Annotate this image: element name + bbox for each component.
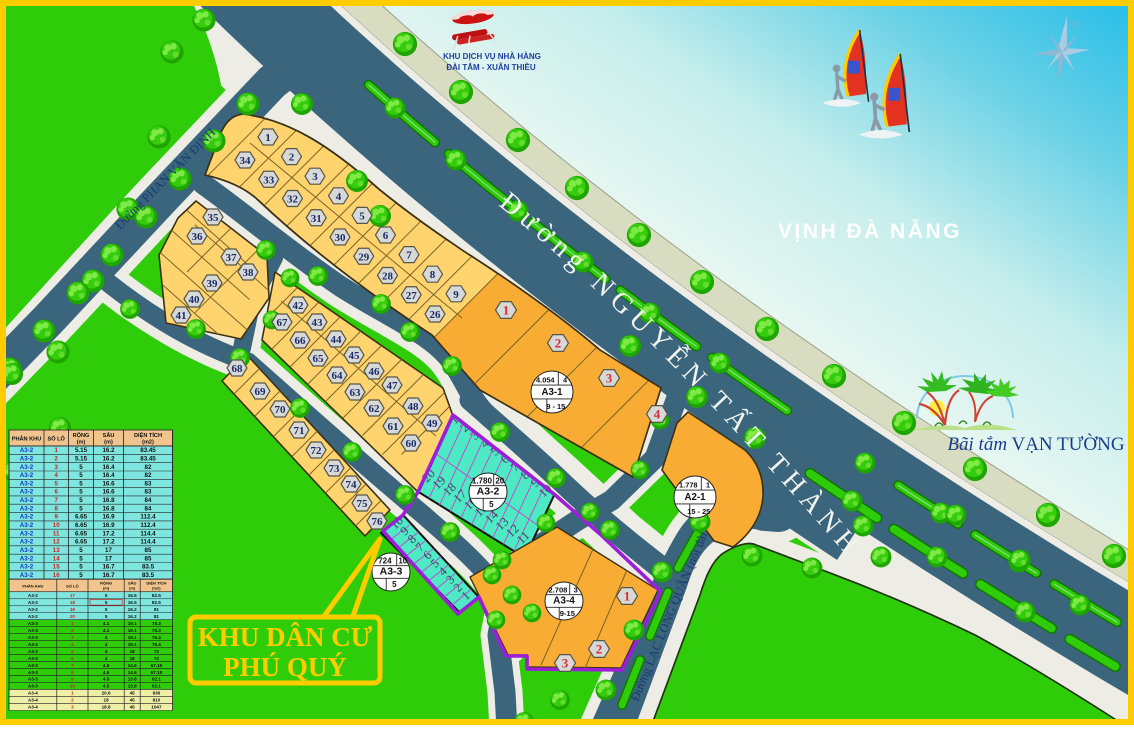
svg-text:34: 34 [240, 155, 252, 167]
svg-text:1047: 1047 [151, 705, 162, 710]
svg-text:39: 39 [207, 278, 219, 290]
svg-text:KHU DỊCH VỤ NHÀ HÀNG: KHU DỊCH VỤ NHÀ HÀNG [443, 52, 541, 61]
svg-text:15: 15 [53, 564, 60, 571]
svg-text:28: 28 [382, 271, 394, 283]
svg-text:VỊNH ĐÀ NẴNG: VỊNH ĐÀ NẴNG [778, 220, 962, 243]
svg-text:A3-3: A3-3 [28, 663, 38, 668]
svg-text:17: 17 [105, 555, 112, 562]
svg-text:48: 48 [408, 401, 420, 413]
svg-text:16.2: 16.2 [102, 447, 115, 454]
svg-text:A3-4: A3-4 [28, 691, 38, 696]
svg-text:19.1: 19.1 [128, 628, 137, 633]
svg-text:85: 85 [145, 555, 152, 562]
svg-text:70: 70 [275, 404, 287, 416]
svg-text:14.6: 14.6 [128, 663, 137, 668]
svg-text:17: 17 [105, 547, 112, 554]
svg-text:A3-2: A3-2 [20, 497, 34, 504]
svg-text:35: 35 [208, 212, 220, 224]
svg-text:7: 7 [54, 497, 58, 504]
svg-text:A3-2: A3-2 [477, 486, 500, 498]
svg-text:69: 69 [255, 386, 267, 398]
svg-text:16.8: 16.8 [102, 505, 115, 512]
svg-text:67.15: 67.15 [151, 670, 163, 675]
svg-text:A3-3: A3-3 [380, 566, 403, 578]
svg-text:62.1: 62.1 [152, 677, 161, 682]
svg-text:17.2: 17.2 [102, 539, 115, 546]
svg-text:17.2: 17.2 [102, 530, 115, 537]
svg-text:A3-3: A3-3 [28, 642, 38, 647]
svg-text:10: 10 [70, 684, 76, 689]
svg-text:A3-2: A3-2 [28, 593, 38, 598]
svg-text:5: 5 [359, 210, 365, 222]
svg-text:A3-2: A3-2 [20, 489, 34, 496]
svg-text:112.4: 112.4 [140, 522, 156, 529]
svg-text:13.8: 13.8 [128, 684, 137, 689]
svg-text:A3-4: A3-4 [28, 698, 38, 703]
svg-text:1: 1 [71, 621, 74, 626]
svg-text:62.1: 62.1 [152, 684, 161, 689]
svg-text:2: 2 [54, 455, 58, 462]
svg-text:A3-2: A3-2 [20, 472, 34, 479]
svg-text:64: 64 [332, 370, 344, 382]
svg-text:A3-2: A3-2 [20, 555, 34, 562]
svg-text:5: 5 [489, 500, 494, 509]
svg-text:A3-3: A3-3 [28, 649, 38, 654]
svg-text:61: 61 [388, 421, 399, 433]
svg-text:1.778: 1.778 [679, 481, 698, 490]
svg-text:5: 5 [79, 505, 83, 512]
svg-text:26: 26 [430, 309, 442, 321]
svg-text:33: 33 [263, 174, 275, 186]
svg-text:5.15: 5.15 [75, 455, 88, 462]
svg-text:81: 81 [154, 607, 160, 612]
svg-text:6.65: 6.65 [75, 522, 88, 529]
svg-text:82: 82 [145, 464, 152, 471]
svg-text:60: 60 [406, 438, 418, 450]
svg-text:114.4: 114.4 [140, 530, 156, 537]
svg-text:114.4: 114.4 [140, 539, 156, 546]
svg-text:4: 4 [54, 472, 58, 479]
svg-text:7: 7 [406, 250, 412, 262]
svg-text:A3-2: A3-2 [20, 464, 34, 471]
svg-text:6: 6 [71, 656, 74, 661]
svg-text:5: 5 [71, 649, 74, 654]
svg-text:16.9: 16.9 [102, 522, 115, 529]
svg-text:3: 3 [312, 171, 318, 183]
svg-text:4: 4 [71, 642, 74, 647]
svg-text:15 - 25: 15 - 25 [687, 507, 710, 516]
svg-text:76.4: 76.4 [152, 642, 161, 647]
svg-text:5.15: 5.15 [75, 447, 88, 454]
svg-text:4: 4 [105, 649, 108, 654]
svg-text:16.2: 16.2 [102, 455, 115, 462]
svg-text:44: 44 [331, 334, 343, 346]
svg-text:27: 27 [406, 290, 418, 302]
svg-text:(m): (m) [77, 440, 86, 446]
svg-text:66: 66 [295, 335, 307, 347]
svg-text:3: 3 [574, 586, 578, 595]
svg-text:1: 1 [503, 303, 510, 318]
svg-text:72: 72 [154, 649, 160, 654]
svg-text:RỘNG: RỘNG [73, 431, 90, 439]
svg-text:6.65: 6.65 [75, 539, 88, 546]
svg-text:1: 1 [71, 691, 74, 696]
svg-text:5: 5 [79, 564, 83, 571]
svg-text:5: 5 [79, 572, 83, 579]
svg-text:9: 9 [453, 289, 459, 301]
svg-text:A3-3: A3-3 [28, 684, 38, 689]
svg-text:2: 2 [596, 642, 603, 657]
svg-text:14: 14 [53, 555, 60, 562]
svg-text:A2-1: A2-1 [685, 492, 707, 503]
svg-text:(m): (m) [103, 586, 110, 591]
svg-text:(m2): (m2) [142, 440, 154, 446]
svg-text:18: 18 [104, 698, 110, 703]
svg-text:12: 12 [53, 539, 60, 546]
svg-text:19.1: 19.1 [128, 642, 137, 647]
svg-text:4.1: 4.1 [103, 628, 110, 633]
svg-text:11: 11 [53, 530, 60, 537]
svg-text:(m): (m) [104, 440, 113, 446]
svg-text:810: 810 [153, 698, 161, 703]
svg-text:8: 8 [71, 670, 74, 675]
svg-text:16.2: 16.2 [128, 614, 137, 619]
svg-text:3: 3 [54, 464, 58, 471]
svg-text:DIỆN TÍCH: DIỆN TÍCH [134, 431, 162, 439]
svg-text:6: 6 [383, 230, 389, 242]
svg-text:20: 20 [70, 614, 76, 619]
svg-text:A3-2: A3-2 [20, 480, 34, 487]
svg-text:4: 4 [336, 191, 342, 203]
svg-text:4.6: 4.6 [103, 663, 110, 668]
svg-text:45: 45 [349, 350, 361, 362]
svg-text:1: 1 [265, 132, 271, 144]
svg-text:A3-2: A3-2 [28, 607, 38, 612]
svg-text:19.1: 19.1 [128, 621, 137, 626]
svg-text:2: 2 [71, 698, 74, 703]
svg-text:4.5: 4.5 [103, 677, 110, 682]
svg-text:16.5: 16.5 [128, 600, 137, 605]
svg-text:5: 5 [79, 555, 83, 562]
svg-text:78.3: 78.3 [152, 628, 161, 633]
svg-text:936: 936 [153, 691, 161, 696]
svg-text:A3-3: A3-3 [28, 677, 38, 682]
svg-text:45: 45 [130, 705, 136, 710]
svg-text:47: 47 [387, 380, 399, 392]
svg-text:83.5: 83.5 [142, 572, 155, 579]
svg-text:5: 5 [105, 607, 108, 612]
svg-text:A3-2: A3-2 [20, 572, 34, 579]
svg-text:4: 4 [105, 656, 108, 661]
svg-text:KHU DÂN CƯ: KHU DÂN CƯ [198, 622, 373, 652]
svg-text:4.6: 4.6 [103, 670, 110, 675]
svg-text:A3-2: A3-2 [20, 522, 34, 529]
svg-text:A3-2: A3-2 [28, 600, 38, 605]
svg-text:45: 45 [130, 691, 136, 696]
svg-text:SÂU: SÂU [103, 432, 115, 439]
svg-text:(m): (m) [129, 586, 136, 591]
svg-text:81: 81 [154, 614, 160, 619]
svg-text:16.9: 16.9 [102, 514, 115, 521]
svg-text:4.1: 4.1 [103, 621, 110, 626]
svg-text:3: 3 [562, 656, 569, 671]
svg-text:45: 45 [130, 698, 136, 703]
svg-text:16: 16 [53, 572, 60, 579]
svg-text:4: 4 [105, 642, 108, 647]
svg-text:37: 37 [226, 252, 238, 264]
svg-text:32: 32 [287, 194, 299, 206]
svg-text:49: 49 [427, 418, 439, 430]
svg-text:5: 5 [79, 489, 83, 496]
svg-text:4.054: 4.054 [536, 376, 555, 385]
svg-text:14.6: 14.6 [128, 670, 137, 675]
svg-text:41: 41 [176, 310, 187, 322]
svg-text:84: 84 [145, 497, 152, 504]
svg-text:74: 74 [346, 479, 358, 491]
svg-text:A3-4: A3-4 [553, 596, 575, 607]
svg-text:67.15: 67.15 [151, 663, 163, 668]
svg-text:13: 13 [53, 547, 60, 554]
svg-text:68: 68 [232, 363, 244, 375]
svg-text:SỐ LÔ: SỐ LÔ [47, 435, 65, 443]
svg-text:A3-2: A3-2 [20, 447, 34, 454]
svg-text:A3-2: A3-2 [20, 539, 34, 546]
svg-text:16.8: 16.8 [102, 497, 115, 504]
svg-text:83.5: 83.5 [142, 564, 155, 571]
svg-text:3: 3 [71, 635, 74, 640]
svg-text:A3-2: A3-2 [20, 514, 34, 521]
svg-text:A3-3: A3-3 [28, 656, 38, 661]
svg-text:72: 72 [311, 445, 323, 457]
svg-text:A3-3: A3-3 [28, 670, 38, 675]
svg-text:4: 4 [654, 407, 661, 422]
svg-text:2: 2 [555, 336, 562, 351]
svg-text:16.5: 16.5 [128, 593, 137, 598]
svg-text:A3-2: A3-2 [20, 530, 34, 537]
svg-text:9-15: 9-15 [560, 609, 576, 618]
svg-text:46: 46 [369, 366, 381, 378]
svg-text:13.8: 13.8 [128, 677, 137, 682]
svg-text:9: 9 [71, 677, 74, 682]
svg-text:5: 5 [105, 600, 108, 605]
svg-text:83.45: 83.45 [140, 447, 156, 454]
svg-text:16.4: 16.4 [102, 472, 115, 479]
svg-text:18: 18 [70, 600, 76, 605]
svg-text:5: 5 [79, 497, 83, 504]
svg-text:18.8: 18.8 [102, 705, 111, 710]
svg-text:A3-3: A3-3 [28, 635, 38, 640]
svg-text:A3-4: A3-4 [28, 705, 38, 710]
svg-text:17: 17 [70, 593, 76, 598]
svg-text:5: 5 [105, 614, 108, 619]
svg-text:4.5: 4.5 [103, 684, 110, 689]
svg-text:31: 31 [311, 213, 322, 225]
svg-text:76: 76 [372, 516, 384, 528]
svg-text:5: 5 [79, 472, 83, 479]
svg-text:ĐÀI TẮM - XUÂN THIỀU: ĐÀI TẮM - XUÂN THIỀU [446, 62, 536, 72]
svg-text:82.5: 82.5 [152, 593, 161, 598]
svg-text:3: 3 [71, 705, 74, 710]
svg-text:10: 10 [53, 522, 60, 529]
svg-text:65: 65 [313, 353, 325, 365]
svg-text:(m2): (m2) [152, 586, 161, 591]
svg-text:6.65: 6.65 [75, 514, 88, 521]
svg-text:Bãi tắm VẠN TƯỜNG: Bãi tắm VẠN TƯỜNG [947, 433, 1124, 455]
svg-text:5: 5 [392, 580, 397, 589]
svg-text:6.65: 6.65 [75, 530, 88, 537]
svg-text:43: 43 [312, 317, 324, 329]
svg-text:8: 8 [54, 505, 58, 512]
svg-text:83.45: 83.45 [140, 455, 156, 462]
svg-text:2.708: 2.708 [548, 586, 567, 595]
svg-text:5: 5 [79, 480, 83, 487]
svg-text:5: 5 [79, 547, 83, 554]
svg-text:16.6: 16.6 [102, 480, 115, 487]
svg-text:A3-2: A3-2 [20, 547, 34, 554]
svg-text:A3-2: A3-2 [20, 564, 34, 571]
svg-text:A3-3: A3-3 [28, 621, 38, 626]
svg-text:18: 18 [130, 649, 136, 654]
svg-text:85: 85 [145, 547, 152, 554]
svg-text:1: 1 [54, 447, 58, 454]
svg-text:29: 29 [358, 251, 370, 263]
svg-text:6: 6 [54, 489, 58, 496]
svg-text:36: 36 [192, 231, 204, 243]
svg-text:19: 19 [70, 607, 76, 612]
svg-text:78.3: 78.3 [152, 621, 161, 626]
svg-text:16.7: 16.7 [102, 564, 115, 571]
svg-text:A3-2: A3-2 [20, 505, 34, 512]
svg-text:A3-2: A3-2 [20, 455, 34, 462]
svg-text:20: 20 [495, 476, 504, 485]
svg-text:16.2: 16.2 [128, 607, 137, 612]
svg-text:72: 72 [154, 656, 160, 661]
svg-text:PHÂN KHU: PHÂN KHU [22, 583, 43, 588]
svg-text:7: 7 [71, 663, 74, 668]
svg-text:PHÂN KHU: PHÂN KHU [12, 436, 42, 443]
svg-text:112.4: 112.4 [140, 514, 156, 521]
svg-text:16.6: 16.6 [102, 489, 115, 496]
svg-text:3: 3 [606, 371, 613, 386]
svg-text:20.6: 20.6 [102, 691, 111, 696]
svg-text:16.7: 16.7 [102, 572, 115, 579]
svg-text:75: 75 [357, 498, 369, 510]
svg-text:71: 71 [294, 425, 305, 437]
svg-text:67: 67 [277, 317, 289, 329]
svg-text:83: 83 [145, 480, 152, 487]
svg-text:40: 40 [189, 294, 201, 306]
svg-text:A3-1: A3-1 [542, 387, 564, 398]
svg-text:82: 82 [145, 472, 152, 479]
svg-text:84: 84 [145, 505, 152, 512]
svg-text:1.780: 1.780 [472, 476, 493, 485]
svg-text:83: 83 [145, 489, 152, 496]
svg-text:10: 10 [398, 557, 407, 566]
svg-text:A3-3: A3-3 [28, 628, 38, 633]
svg-text:5: 5 [54, 480, 58, 487]
svg-text:73: 73 [329, 463, 341, 475]
svg-text:1: 1 [706, 481, 710, 490]
svg-text:42: 42 [293, 300, 305, 312]
svg-text:18: 18 [130, 656, 136, 661]
svg-text:30: 30 [335, 232, 347, 244]
svg-text:A3-2: A3-2 [28, 614, 38, 619]
svg-text:9: 9 [54, 514, 58, 521]
svg-text:82.5: 82.5 [152, 600, 161, 605]
svg-text:2: 2 [289, 152, 295, 164]
svg-text:8: 8 [430, 269, 436, 281]
svg-text:16.4: 16.4 [102, 464, 115, 471]
svg-text:5: 5 [105, 593, 108, 598]
svg-text:19.1: 19.1 [128, 635, 137, 640]
svg-text:SỐ LÔ: SỐ LÔ [66, 583, 78, 588]
svg-text:4: 4 [105, 635, 108, 640]
svg-text:9 - 15: 9 - 15 [546, 402, 565, 411]
svg-text:62: 62 [369, 403, 381, 415]
svg-text:63: 63 [350, 387, 362, 399]
svg-text:724: 724 [378, 557, 392, 566]
svg-text:1: 1 [624, 589, 631, 604]
svg-text:5: 5 [79, 464, 83, 471]
svg-text:2: 2 [71, 628, 74, 633]
svg-text:PHÚ QUÝ: PHÚ QUÝ [223, 652, 347, 682]
svg-text:38: 38 [243, 267, 255, 279]
svg-text:76.4: 76.4 [152, 635, 161, 640]
